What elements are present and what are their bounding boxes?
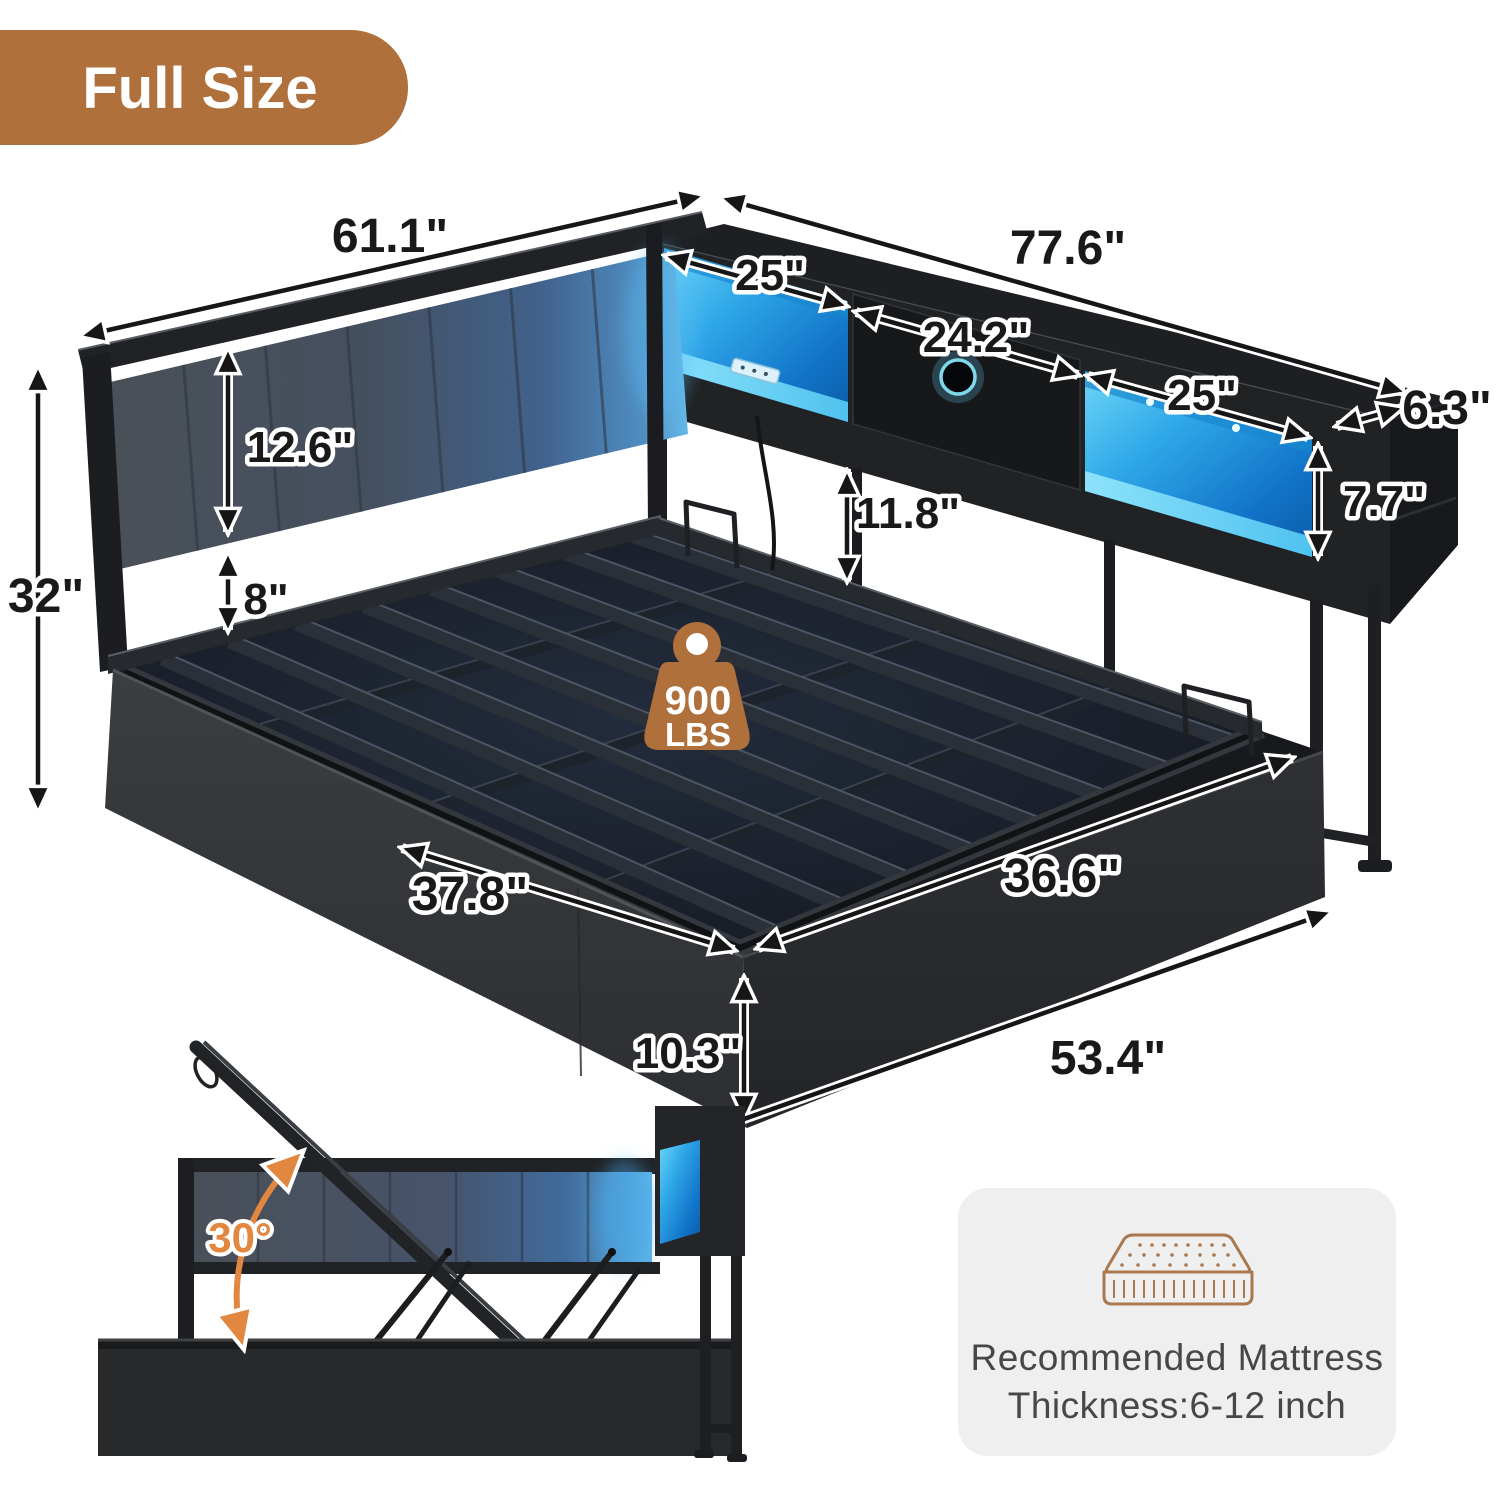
piston-joint — [608, 1248, 616, 1256]
inset-headboard-post — [178, 1158, 194, 1342]
dim-label-cushion-height: 12.6" — [247, 423, 354, 472]
dim-gap: 8" — [228, 554, 289, 630]
inset-led-glow — [595, 1160, 655, 1270]
inset-headboard-bottom-rail — [178, 1262, 660, 1274]
headboard-right-post — [646, 222, 664, 532]
shelf-post — [1104, 540, 1115, 679]
side-table-front-leg — [1310, 600, 1323, 760]
piston-joint — [444, 1248, 452, 1256]
cable-hole — [941, 360, 975, 394]
dim-label-right-shelf: 25" — [1167, 371, 1237, 420]
side-table-rear-leg — [1368, 585, 1381, 867]
weight-unit: LBS — [665, 716, 731, 753]
dim-label-left-shelf: 25" — [735, 251, 805, 300]
dim-label-platform-length: 36.6" — [1004, 850, 1120, 903]
mattress-card: Recommended Mattress Thickness:6-12 inch — [958, 1188, 1396, 1456]
led-spot — [1146, 398, 1154, 406]
dim-label-depth: 6.3" — [1402, 382, 1491, 435]
bed-diagram-svg: 900 LBS 61.1" 77.6" 25" 24.2" 25" — [0, 0, 1500, 1500]
dim-label-shelf-height: 7.7" — [1343, 477, 1425, 526]
side-table-foot — [1358, 860, 1392, 872]
dim-label-platform-width: 37.8" — [412, 868, 528, 921]
dim-label-total-height: 32" — [8, 570, 84, 623]
inset-headboard-top-rail — [178, 1158, 660, 1174]
lift-up-inset: 30° — [98, 1042, 747, 1462]
size-badge: Full Size — [0, 30, 408, 145]
dim-total-height: 32" — [8, 368, 84, 810]
dim-label-base-height: 10.3" — [635, 1029, 742, 1078]
dim-clearance: 11.8" — [847, 472, 960, 580]
dim-label-gap: 8" — [243, 575, 288, 624]
dim-label-base-length: 53.4" — [1050, 1032, 1166, 1085]
angle-label: 30° — [208, 1214, 272, 1261]
dim-label-headboard-width: 61.1" — [332, 210, 448, 263]
dim-label-clearance: 11.8" — [856, 489, 960, 538]
led-spot — [1232, 424, 1240, 432]
size-badge-label: Full Size — [82, 56, 317, 121]
weight-icon-hole — [686, 633, 708, 655]
inset-storage-box — [98, 1340, 740, 1456]
dim-label-drawer: 24.2" — [923, 313, 1030, 362]
product-dimension-image: 900 LBS 61.1" 77.6" 25" 24.2" 25" — [0, 0, 1500, 1500]
dim-label-bookcase-length: 77.6" — [1010, 222, 1126, 275]
mattress-card-line2: Thickness:6-12 inch — [1008, 1385, 1347, 1426]
mattress-card-line1: Recommended Mattress — [970, 1337, 1383, 1378]
